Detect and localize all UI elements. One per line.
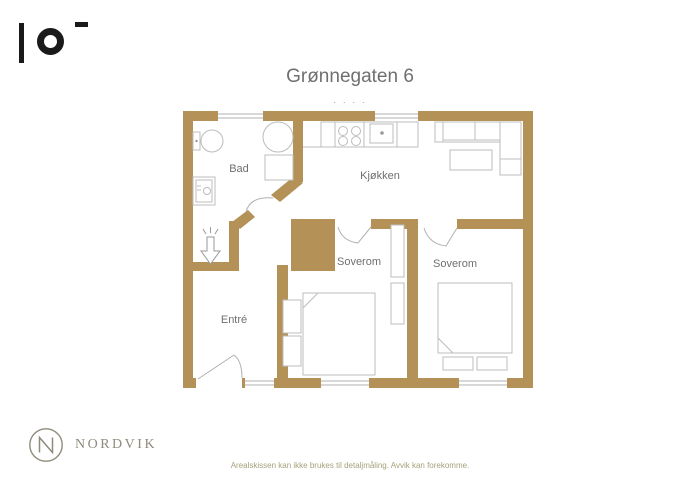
wardrobe-icon xyxy=(391,225,404,277)
entrance-door-swing xyxy=(198,355,242,379)
chimney-shaft xyxy=(291,219,335,271)
bath-kitchen-divider xyxy=(293,121,303,182)
window xyxy=(375,111,418,121)
window xyxy=(218,111,263,121)
room-label-entrance: Entré xyxy=(221,314,247,326)
kitchen-fixtures xyxy=(303,122,418,147)
washing-machine-icon xyxy=(193,177,215,205)
room-label-bedroom2: Soverom xyxy=(433,258,477,270)
bedroom2-furniture xyxy=(438,283,512,370)
bath-door-jamb-wall xyxy=(271,177,303,202)
double-bed-icon xyxy=(283,293,375,375)
toilet-icon xyxy=(193,130,223,152)
bathroom-door-swing xyxy=(246,198,273,212)
corner-shower-icon xyxy=(263,122,293,152)
room-label-bedroom1: Soverom xyxy=(337,256,381,268)
floorplan-page: Grønnegaten 6 · · · · xyxy=(0,0,700,500)
disclaimer-text: Arealskissen kan ikke brukes til detaljm… xyxy=(0,461,700,470)
kitchen-sink-icon xyxy=(370,124,393,143)
room-label-kitchen: Kjøkken xyxy=(360,170,400,182)
living-furniture xyxy=(435,122,521,175)
wardrobe-icon xyxy=(391,283,404,324)
bath-cabinet-icon xyxy=(265,155,293,180)
room-label-bathroom: Bad xyxy=(229,163,249,175)
entry-arrow-icon xyxy=(201,227,220,264)
entrance-door-opening xyxy=(196,378,242,388)
coffee-table-icon xyxy=(450,150,492,170)
bedroom2-door-swing xyxy=(424,228,457,246)
double-bed-icon xyxy=(438,283,512,370)
window xyxy=(321,378,369,388)
window xyxy=(459,378,507,388)
bedroom1-door-swing xyxy=(338,227,371,243)
window xyxy=(245,378,274,388)
bedroom-divider-wall xyxy=(407,219,418,378)
bath-niche-wall-h xyxy=(193,262,233,271)
agency-name: NORDVIK xyxy=(75,437,157,453)
